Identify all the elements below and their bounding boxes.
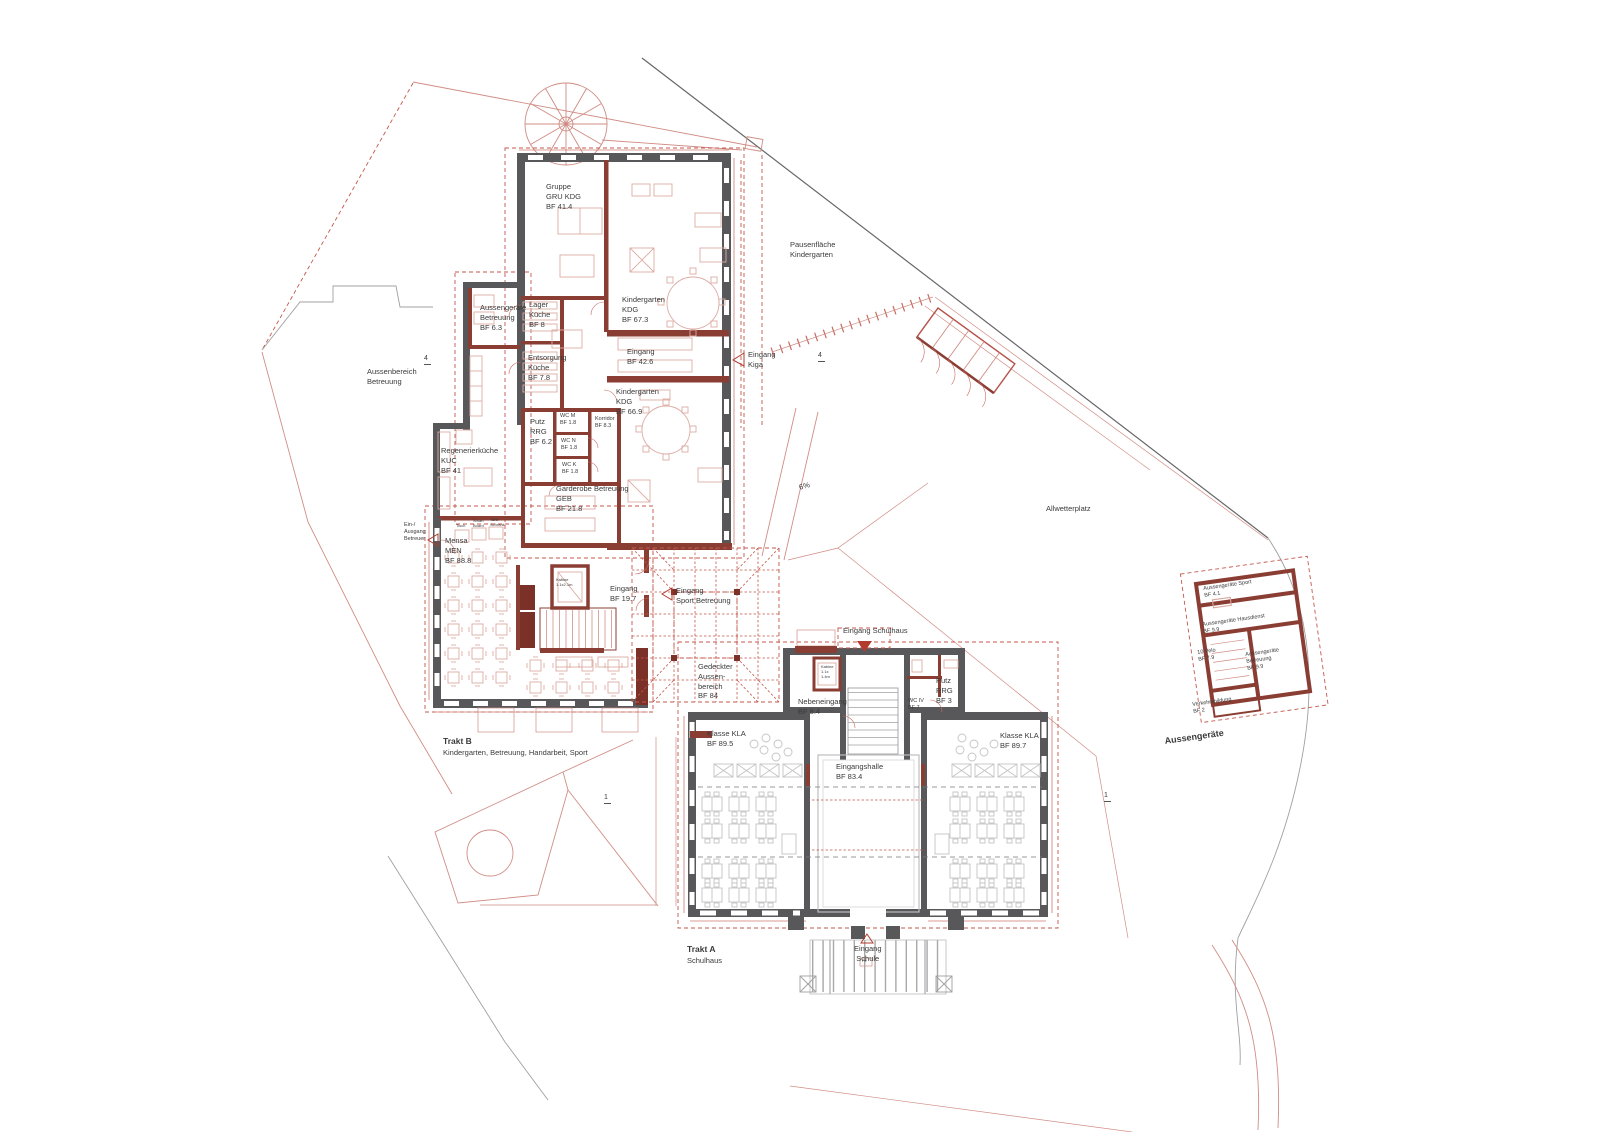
room-putz-b: Putz RRG BF 6.2 — [530, 417, 552, 446]
room-korridor: Korridor BF 8.3 — [595, 416, 615, 430]
site-boundaries — [262, 58, 1309, 1132]
label-eingang-kiga: Eingang Kiga — [748, 350, 776, 370]
label-eingang-schule: Eingang Schule — [854, 944, 882, 964]
label-ein-ausgang: Ein-/ Ausgang Betreuer — [404, 522, 426, 543]
room-aussengeraete-betreuung: Aussengeräte Betreuung BF 6.3 — [480, 303, 526, 332]
room-klasse-rechts: Klasse KLA BF 89.7 — [1000, 731, 1039, 751]
label-eingang-sport: Eingang Sport Betreuung — [676, 586, 731, 606]
shed-velo: 10 Velo BF 7.9 — [1197, 647, 1217, 663]
room-gedeckter-aussenbereich: Gedeckter Aussen- bereich BF 84 — [698, 662, 733, 701]
label-tisch: Tisch — [456, 524, 465, 529]
marker-4-right: 4 — [818, 351, 825, 362]
label-pausenflaeche: Pausenfläche Kindergarten — [790, 240, 835, 260]
room-gruppe: Gruppe GRU KDG BF 41.4 — [546, 182, 581, 211]
trakt-a-subtitle: Schulhaus — [687, 956, 722, 966]
room-putz-a: Putz RRG BF 3 — [936, 676, 953, 705]
label-kabine-a: Kabine 1.1x 1.4m — [821, 665, 833, 679]
site-plan-drawing — [0, 0, 1600, 1132]
label-aussenbereich: Aussenbereich Betreuung — [367, 367, 417, 387]
label-allwetterplatz: Allwetterplatz — [1046, 504, 1091, 514]
room-klasse-links: Klasse KLA BF 89.5 — [707, 729, 746, 749]
marker-1-left: 1 — [604, 793, 611, 804]
storage-shelter — [906, 308, 1015, 408]
trakt-a-title: Trakt A — [687, 944, 716, 955]
label-fe: Fe — [862, 959, 867, 964]
marker-4-left: 4 — [424, 354, 431, 365]
floor-plan-canvas: Pausenfläche Kindergarten Aussenbereich … — [0, 0, 1600, 1132]
label-kabine-b: Kabine 1.1x2.1m — [556, 578, 572, 588]
room-wc-iv: WC IV BF 7 — [908, 698, 924, 712]
room-wc-n: WC N BF 1.8 — [561, 438, 577, 452]
room-wc-m: WC M BF 1.8 — [560, 413, 576, 427]
room-entsorgung: Entsorgung Küche BF 7.8 — [528, 353, 566, 382]
room-eingang-kdg: Eingang BF 42.6 — [627, 347, 655, 367]
room-eingangshalle: Eingangshalle BF 83.4 — [836, 762, 883, 782]
room-mensa: Mensa MEN BF 88.8 — [445, 536, 471, 565]
room-eingang-b: Eingang BF 19.7 — [610, 584, 638, 604]
room-garderobe: Garderobe Betreuung GEB BF 21.8 — [556, 484, 629, 513]
label-eingang-schulhaus: Eingang Schulhaus — [843, 626, 908, 636]
room-nebeneingang: Nebeneingang BF 8.4 — [798, 697, 847, 717]
trakt-b-building — [425, 148, 779, 732]
trakt-b-subtitle: Kindergarten, Betreuung, Handarbeit, Spo… — [443, 748, 588, 758]
marker-1-right: 1 — [1104, 791, 1111, 802]
room-lager: Lager Küche BF 8 — [529, 300, 550, 329]
room-kindergarten-1: Kindergarten KDG BF 67.3 — [622, 295, 665, 324]
room-regenerierkueche: Regenerierküche KUC BF 41 — [441, 446, 498, 475]
trakt-b-title: Trakt B — [443, 736, 472, 747]
room-wc-k: WC K BF 1.8 — [562, 462, 578, 476]
label-tafelschrank: Tafel- Schrank — [490, 518, 505, 528]
room-kindergarten-2: Kindergarten KDG BF 66.9 — [616, 387, 659, 416]
trakt-a-building — [678, 628, 1058, 994]
label-smartboard: Smart Board — [473, 519, 484, 529]
